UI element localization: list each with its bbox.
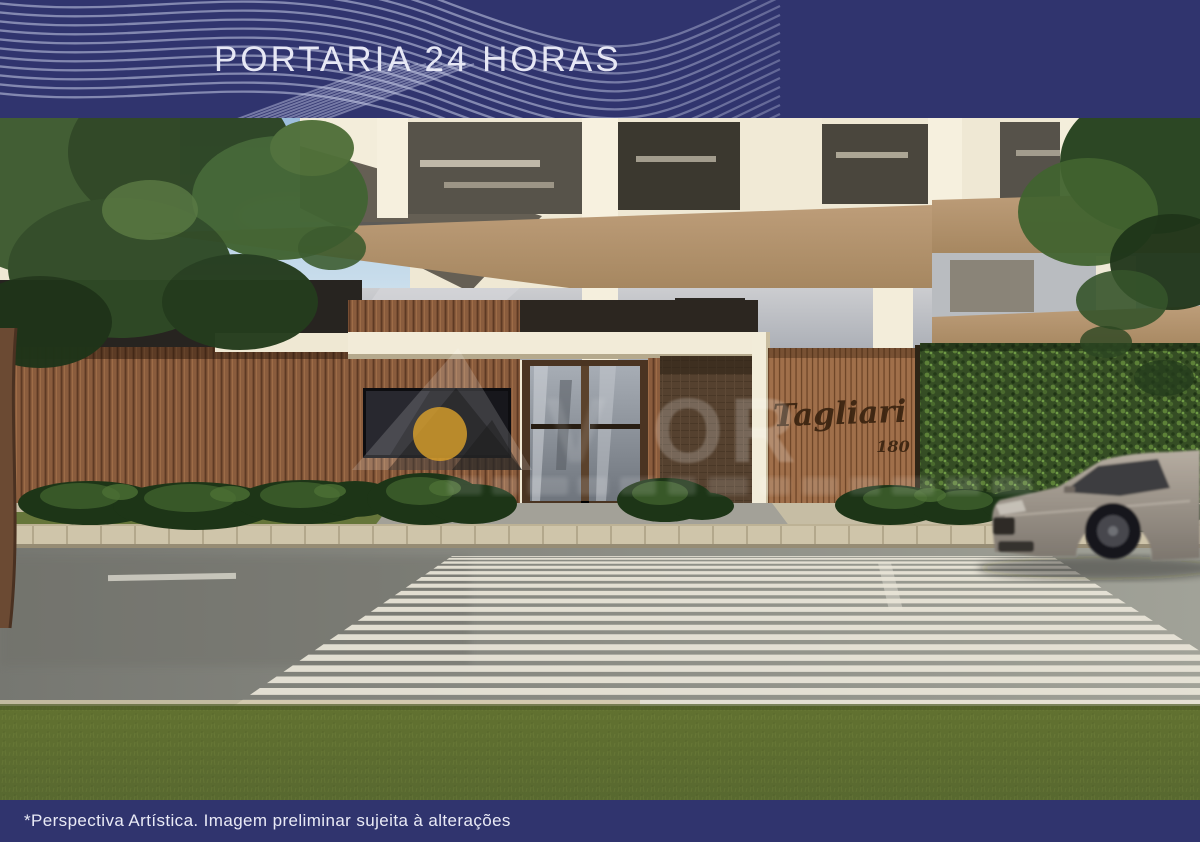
- crosswalk-stripe: [433, 566, 1071, 569]
- crosswalk-stripe: [395, 591, 1113, 595]
- crosswalk-stripe: [283, 665, 1200, 671]
- header-banner: PORTARIA 24 HORAS: [0, 0, 1200, 118]
- crosswalk-stripe: [441, 561, 1065, 563]
- render-canvas: Tagliari 180: [0, 118, 1200, 800]
- crosswalk-stripe: [416, 577, 1091, 581]
- crosswalk-stripe: [371, 607, 1139, 612]
- footer-bar: *Perspectiva Artística. Imagem prelimina…: [0, 800, 1200, 842]
- crosswalk-stripe: [358, 616, 1153, 621]
- crosswalk-stripe: [406, 584, 1102, 588]
- watermark-letter-faint: V: [545, 380, 606, 482]
- front-grass: [0, 700, 1200, 800]
- watermark-logo-sun: [413, 407, 467, 461]
- crosswalk-stripe: [383, 599, 1126, 604]
- crosswalk-stripe: [299, 655, 1200, 661]
- car-mirror: [1064, 486, 1075, 493]
- disclaimer-text: *Perspectiva Artística. Imagem prelimina…: [24, 811, 511, 831]
- crosswalk-stripe: [330, 634, 1183, 640]
- wave-fade-overlay: [520, 0, 1200, 118]
- car-grille: [993, 517, 1015, 535]
- crosswalk-stripe: [267, 677, 1200, 684]
- presentation-slide: PORTARIA 24 HORAS: [0, 0, 1200, 842]
- page-title: PORTARIA 24 HORAS: [214, 40, 622, 80]
- crosswalk-stripe: [250, 688, 1200, 695]
- crosswalk-stripe: [315, 644, 1199, 650]
- sign-number-text: 180: [876, 437, 909, 456]
- architectural-render: Tagliari 180: [0, 118, 1200, 800]
- crosswalk-stripe: [447, 558, 1058, 560]
- watermark-letters: OR: [652, 380, 802, 482]
- crosswalk-stripe: [425, 571, 1081, 574]
- crosswalk-stripe: [451, 556, 1054, 557]
- canopy-lintel: [348, 332, 770, 356]
- crosswalk-stripe: [344, 625, 1168, 631]
